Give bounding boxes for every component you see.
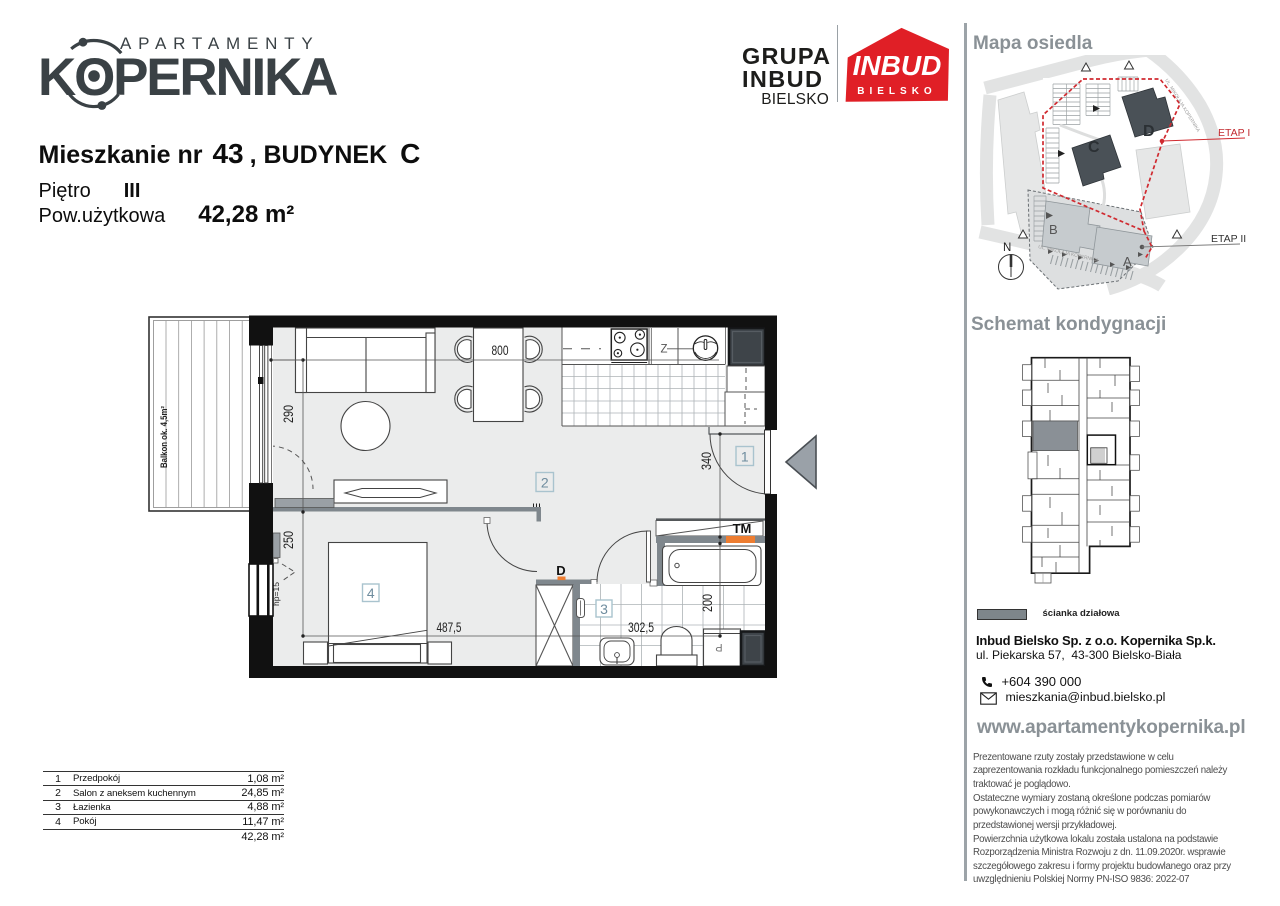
svg-text:TM: TM [733, 521, 752, 536]
svg-text:250: 250 [281, 531, 296, 549]
svg-text:D: D [1143, 123, 1155, 140]
svg-text:B: B [1049, 222, 1058, 237]
svg-text:2: 2 [541, 475, 549, 491]
svg-text:200: 200 [700, 594, 715, 612]
svg-text:Z: Z [661, 344, 668, 356]
svg-text:N: N [1003, 242, 1011, 254]
svg-text:D: D [556, 563, 565, 578]
svg-text:290: 290 [281, 405, 296, 423]
svg-text:ETAP II: ETAP II [1211, 233, 1246, 245]
svg-text:487,5: 487,5 [437, 620, 462, 635]
svg-text:1: 1 [741, 449, 749, 465]
svg-text:KOPERNIKA: KOPERNIKA [38, 48, 337, 107]
svg-text:BIELSKO: BIELSKO [857, 86, 936, 97]
svg-text:INBUD: INBUD [853, 50, 942, 81]
svg-text:C: C [1088, 139, 1100, 156]
svg-text:800: 800 [492, 343, 509, 358]
svg-text:ETAP I: ETAP I [1218, 127, 1250, 139]
svg-text:340: 340 [699, 452, 714, 470]
svg-text:4: 4 [367, 585, 375, 601]
svg-text:302,5: 302,5 [628, 620, 654, 635]
svg-text:Balkon ok. 4,5m²: Balkon ok. 4,5m² [159, 406, 169, 468]
svg-text:P: P [715, 641, 722, 653]
svg-text:3: 3 [600, 601, 608, 617]
